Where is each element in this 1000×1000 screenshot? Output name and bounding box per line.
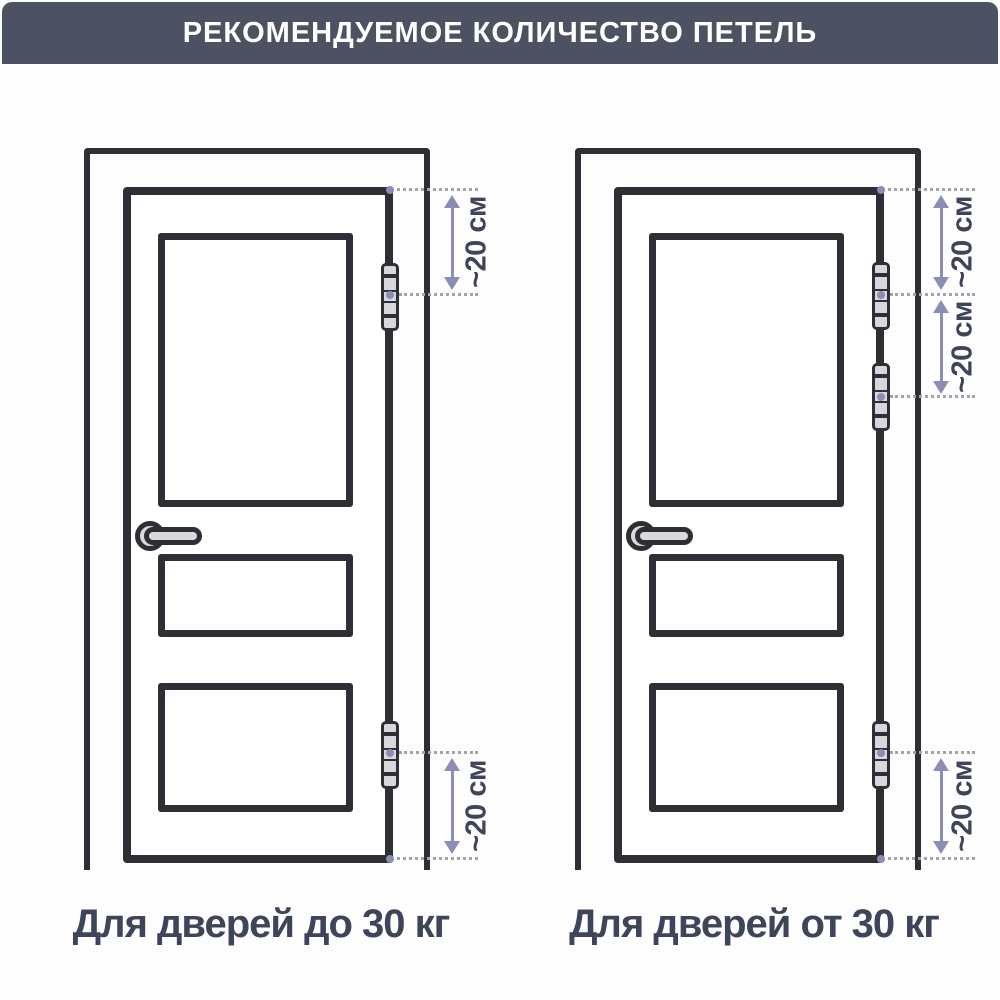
hinge-knuckle-line bbox=[875, 401, 887, 403]
dim-dotted-line bbox=[881, 857, 975, 860]
dim-label: ~20 см bbox=[947, 760, 980, 852]
hinge-knuckle-line bbox=[875, 414, 887, 418]
dim-dotted-line bbox=[881, 188, 975, 191]
dim-dot bbox=[877, 749, 885, 757]
door-panel-top bbox=[649, 233, 844, 507]
door-handle-lever bbox=[635, 527, 693, 545]
dim-label: ~20 см bbox=[947, 301, 980, 393]
dim-dotted-line bbox=[890, 751, 975, 754]
arrow-shaft bbox=[940, 310, 943, 384]
dim-dotted-line bbox=[890, 395, 975, 398]
door-panel-middle bbox=[649, 554, 844, 637]
door-panel-bottom bbox=[649, 683, 844, 812]
dim-label: ~20 см bbox=[947, 196, 980, 288]
dim-dot bbox=[877, 186, 885, 194]
arrow-shaft bbox=[940, 768, 943, 844]
dim-dot bbox=[877, 855, 885, 863]
arrow-shaft bbox=[940, 205, 943, 280]
hinge-knuckle-line bbox=[875, 300, 887, 302]
dim-dot bbox=[877, 393, 885, 401]
hinge-knuckle-line bbox=[875, 374, 887, 378]
hinge-knuckle-line bbox=[875, 390, 887, 392]
page: РЕКОМЕНДУЕМОЕ КОЛИЧЕСТВО ПЕТЕЛЬ bbox=[0, 0, 1000, 1000]
hinge-knuckle-line bbox=[875, 732, 887, 736]
hinge-knuckle-line bbox=[875, 772, 887, 776]
dim-dotted-line bbox=[890, 293, 975, 296]
dim-dot bbox=[877, 291, 885, 299]
hinge-knuckle-line bbox=[875, 313, 887, 317]
hinge-knuckle-line bbox=[875, 273, 887, 277]
hinge-knuckle-line bbox=[875, 759, 887, 761]
diagram-caption: Для дверей от 30 кг bbox=[534, 902, 974, 947]
diagram-heavy-doors: ~20 см ~20 см ~20 см Для дверей от 30 кг bbox=[0, 0, 1000, 1000]
